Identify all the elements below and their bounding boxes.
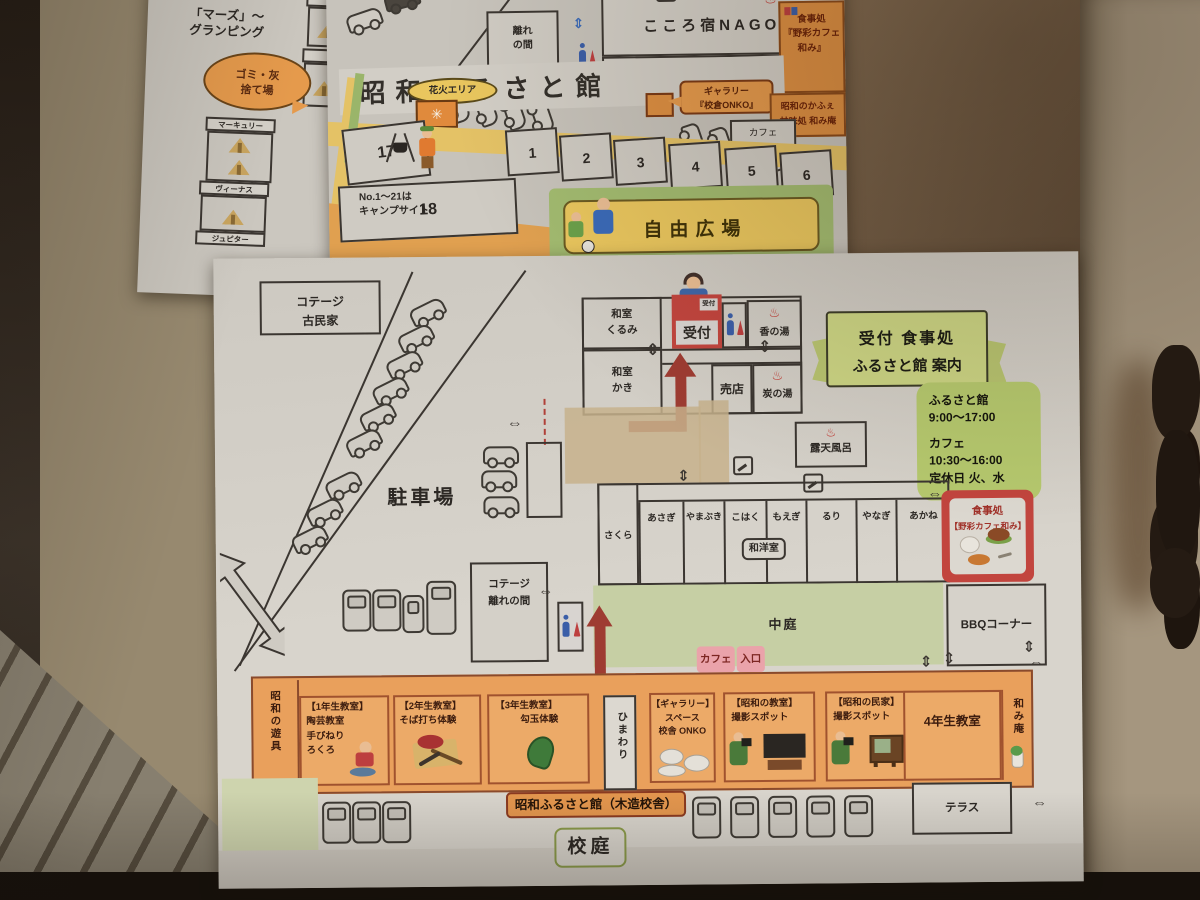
child-shirt-blue bbox=[593, 210, 613, 234]
gallery-pointer bbox=[668, 97, 682, 108]
gallery-space-line1: 【ギャラリー】 bbox=[651, 697, 713, 711]
road-double-arrow bbox=[220, 534, 285, 679]
hours-cafe-name: カフェ bbox=[929, 434, 1041, 452]
tv-screen-icon bbox=[874, 739, 890, 753]
leftright-arrow-icon: ⇔ bbox=[538, 584, 553, 599]
room-label: あかね bbox=[909, 510, 938, 521]
tent-icon bbox=[228, 160, 251, 176]
tent-box-venus bbox=[200, 195, 267, 234]
hanging-chain bbox=[1152, 345, 1200, 440]
note-line2: キャンプサイト bbox=[359, 204, 429, 219]
room-label: あさぎ bbox=[647, 513, 676, 524]
female-restroom-icon bbox=[573, 622, 580, 637]
camper-illustration bbox=[388, 126, 449, 181]
classroom1-line1: 【1年生教室】 bbox=[306, 700, 387, 715]
classroom3-line2: 勾玉体験 bbox=[495, 713, 583, 728]
van-icon bbox=[402, 595, 424, 633]
camp-restaurant-box: 食事処 『野彩カフェ 和み』 bbox=[778, 0, 845, 93]
child-shirt-green bbox=[568, 221, 583, 237]
path-arrow-head-up bbox=[586, 605, 612, 626]
hot-spring-icon: ♨ bbox=[764, 0, 777, 6]
kurumi-line1: 和室 bbox=[584, 307, 660, 323]
hot-spring-icon: ♨ bbox=[754, 369, 800, 382]
classroom1-box: 【1年生教室】 陶芸教室 手びねり ろくろ bbox=[299, 695, 390, 786]
campsite-1: 1 bbox=[505, 127, 560, 176]
classroom3-box: 【3年生教室】 勾玉体験 bbox=[487, 694, 590, 785]
food-patty-icon bbox=[988, 528, 1010, 541]
dish-icon bbox=[658, 765, 686, 777]
updown-arrow-icon: ⇕ bbox=[920, 655, 933, 670]
nagomian-label: 和み庵 bbox=[1011, 698, 1026, 736]
glamping-title-line2: グランピング bbox=[189, 22, 265, 41]
cafe-restaurant-line2: 【野彩カフェ和み】 bbox=[950, 520, 1026, 533]
leftright-arrow-icon: ⇔ bbox=[507, 416, 523, 432]
schoolyard-text: 校庭 bbox=[567, 836, 613, 857]
potter-body bbox=[356, 752, 374, 766]
building-name-label: 昭和ふるさと館（木造校舎） bbox=[506, 791, 686, 819]
photo-minka-line2: 撮影スポット bbox=[833, 710, 911, 725]
car-icon bbox=[345, 6, 385, 35]
school-building: 昭和の遊具 【1年生教室】 陶芸教室 手びねり ろくろ 【2年生教室】 そば打ち… bbox=[251, 670, 1034, 795]
female-restroom-icon bbox=[737, 320, 744, 335]
cottage-hanare-line2: 離れの間 bbox=[472, 593, 546, 610]
site-number: 4 bbox=[691, 158, 700, 174]
banner-line2: ふるさと館 案内 bbox=[828, 354, 986, 376]
sweets-line1: 昭和のかふぇ bbox=[772, 98, 844, 114]
classroom2-line2: そば打ち体験 bbox=[399, 714, 479, 729]
magatama-icon bbox=[523, 733, 557, 771]
bath-sumi-box: ♨ 炭の湯 bbox=[752, 364, 802, 414]
hours-facility-name: ふるさと館 bbox=[928, 392, 1040, 410]
room-sakura: さくら bbox=[597, 483, 639, 585]
camper-legs bbox=[421, 156, 433, 168]
red-dashed-line bbox=[544, 399, 546, 445]
car-icon bbox=[322, 802, 351, 844]
room-label: さくら bbox=[604, 530, 633, 541]
car-icon bbox=[372, 589, 401, 631]
photo-classroom-line2: 撮影スポット bbox=[731, 711, 813, 726]
male-restroom-icon bbox=[562, 622, 569, 637]
car-icon bbox=[344, 426, 384, 458]
campsite-2: 2 bbox=[559, 132, 614, 181]
cottage-hanare-box: コテージ 離れの間 bbox=[470, 562, 549, 663]
path-area bbox=[699, 400, 730, 484]
restroom-box-2 bbox=[557, 602, 583, 652]
room-label: るり bbox=[822, 511, 841, 522]
reception-text: 受付 bbox=[683, 324, 711, 340]
pottery-wheel-icon bbox=[350, 767, 376, 776]
car-icon bbox=[384, 348, 424, 380]
car-icon bbox=[370, 374, 410, 406]
car-icon bbox=[481, 470, 517, 488]
glamping-title: 「マーズ」〜 グランピング bbox=[189, 6, 265, 41]
gallery-space-line2: スペース bbox=[651, 711, 713, 725]
camp-map-paper: 離れ の間 ⇕ ⇕ こころ宿NAGOMI ♨ 枯山水『栃木の庭』 食事処 『野彩… bbox=[326, 0, 848, 278]
reception-label: 受付 bbox=[676, 320, 718, 344]
car-icon bbox=[692, 796, 721, 838]
car-icon bbox=[290, 523, 330, 555]
camera-icon bbox=[843, 737, 853, 745]
note-line1: No.1〜21は bbox=[359, 190, 429, 205]
photo-minka-line1: 【昭和の民家】 bbox=[833, 696, 911, 711]
fireworks-text: 花火エリア bbox=[429, 85, 477, 97]
campsite-3: 3 bbox=[613, 137, 668, 186]
car-icon bbox=[352, 801, 381, 843]
campsite-4: 4 bbox=[668, 141, 723, 190]
himawari-cell: ひまわり bbox=[603, 695, 637, 790]
path-arrow-shaft bbox=[594, 625, 605, 677]
shop-label: 売店 bbox=[720, 382, 744, 396]
gallery-space-box: 【ギャラリー】 スペース 校舎 ONKO bbox=[649, 692, 716, 783]
cafe-entrance-label-1: カフェ bbox=[697, 646, 735, 672]
soccer-ball-icon bbox=[582, 240, 595, 253]
himawari-label: ひまわり bbox=[615, 711, 630, 761]
children-playing-illustration bbox=[567, 193, 628, 254]
cafe-restaurant-line1: 食事処 bbox=[949, 503, 1025, 519]
car-icon bbox=[342, 589, 371, 631]
cafe-entrance-label-2: 入口 bbox=[737, 646, 765, 672]
dish-icon bbox=[660, 749, 684, 765]
meal-icon bbox=[784, 7, 790, 15]
tv-leg-icon bbox=[892, 761, 896, 767]
info-banner: 受付 食事処 ふるさと館 案内 bbox=[826, 310, 989, 387]
leftright-arrow-icon: ⇔ bbox=[1029, 656, 1044, 671]
classroom1-line4: ろくろ bbox=[307, 743, 388, 758]
nagomian-cell: 和み庵 bbox=[1001, 690, 1034, 780]
bbq-label: BBQコーナー bbox=[961, 619, 1033, 632]
updown-arrow-icon: ⇕ bbox=[572, 16, 584, 30]
reception-tag: 受付 bbox=[700, 298, 718, 310]
cafe-entrance-word2: 入口 bbox=[740, 653, 761, 665]
terrace-label: テラス bbox=[945, 802, 979, 814]
hanging-chain-end bbox=[1150, 548, 1200, 618]
smoking-area-icon bbox=[733, 456, 753, 475]
classroom1-line3: 手びねり bbox=[306, 729, 387, 744]
restaurant-line3: 和み』 bbox=[781, 41, 843, 56]
bubble-tail bbox=[292, 100, 309, 115]
leftright-arrow-icon: ⇔ bbox=[1032, 796, 1047, 811]
cottage-hanare-line1: コテージ bbox=[472, 576, 546, 593]
bus-icon bbox=[426, 581, 456, 635]
hot-spring-icon: ♨ bbox=[797, 426, 865, 439]
wayo-room-label: 和洋室 bbox=[742, 538, 786, 560]
hot-spring-icon: ♨ bbox=[749, 306, 800, 319]
tent-box-mercury bbox=[205, 131, 273, 183]
food-rice-icon bbox=[960, 536, 980, 553]
car-icon bbox=[483, 446, 519, 464]
photo-classroom-line1: 【昭和の教室】 bbox=[731, 697, 813, 712]
restroom-box bbox=[722, 302, 747, 348]
car-icon bbox=[323, 469, 363, 501]
hours-cafe-time: 10:30〜16:00 bbox=[929, 452, 1041, 470]
kurumi-line2: くるみ bbox=[584, 323, 660, 339]
white-utility-box bbox=[526, 442, 563, 518]
bath-kaori-label: 香の湯 bbox=[749, 323, 800, 338]
camper-body bbox=[419, 138, 435, 156]
wayo-room-text: 和洋室 bbox=[749, 543, 779, 554]
classroom2-box: 【2年生教室】 そば打ち体験 bbox=[393, 694, 482, 785]
food-croquette-icon bbox=[968, 554, 990, 565]
tent-icon bbox=[229, 138, 252, 154]
classroom4-cell: 4年生教室 bbox=[903, 690, 1002, 781]
room-label: こはく bbox=[731, 512, 760, 523]
bath-kaori-box: ♨ 香の湯 bbox=[747, 300, 802, 348]
spoon-icon bbox=[998, 552, 1012, 559]
room-ruri: るり bbox=[805, 500, 856, 583]
hanare-line1: 離れ bbox=[489, 24, 557, 39]
site-number: 6 bbox=[802, 167, 811, 183]
classroom1-line2: 陶芸教室 bbox=[306, 715, 387, 730]
parking-label: 駐車場 bbox=[387, 481, 456, 511]
banner-line1: 受付 食事処 bbox=[828, 324, 986, 349]
updown-arrow-icon: ⇕ bbox=[677, 469, 690, 484]
open-air-bath-box: ♨ 露天風呂 bbox=[795, 421, 867, 468]
room-yanagi: やなぎ bbox=[855, 500, 896, 583]
updown-arrow-icon: ⇕ bbox=[1023, 640, 1036, 655]
bottom-ground-band bbox=[218, 843, 1083, 889]
kaki-line2: かき bbox=[584, 381, 660, 397]
building-name-text: 昭和ふるさと館（木造校舎） bbox=[515, 797, 678, 812]
photo-minka-box: 【昭和の民家】 撮影スポット bbox=[825, 691, 914, 782]
campsite-note: No.1〜21は キャンプサイト bbox=[359, 190, 429, 219]
site-number: 3 bbox=[636, 154, 645, 170]
courtyard-label: 中庭 bbox=[768, 614, 798, 633]
car-icon bbox=[768, 796, 797, 838]
site-number: 5 bbox=[747, 162, 756, 178]
blackboard-icon bbox=[763, 734, 805, 758]
male-restroom-icon bbox=[727, 320, 734, 335]
gallery-line1: ギャラリー bbox=[681, 83, 771, 99]
updown-arrow-icon: ⇕ bbox=[758, 340, 772, 356]
playground-equip-label: 昭和の遊具 bbox=[268, 690, 284, 753]
updown-arrow-icon: ⇕ bbox=[646, 343, 660, 359]
car-icon bbox=[844, 795, 873, 837]
car-icon bbox=[382, 801, 411, 843]
gallery-space-line3: 校舎 ONKO bbox=[651, 724, 713, 738]
plaza-label: 自由広場 bbox=[643, 214, 747, 242]
site-number: 1 bbox=[528, 145, 537, 161]
reception-box: 受付 受付 bbox=[672, 294, 722, 348]
kominka-line2: 古民家 bbox=[262, 311, 379, 331]
site-label-jupiter: ジュピター bbox=[195, 230, 265, 247]
car-icon bbox=[358, 400, 398, 432]
glamping-map-paper: 「マーズ」〜 グランピング ゴミ・灰 捨て場 マーキュリー ヴィーナス ジュピタ… bbox=[137, 0, 345, 300]
gallery-label: ギャラリー 『校倉ONKO』 bbox=[679, 79, 773, 114]
desk-icon bbox=[768, 760, 802, 770]
cafe-restaurant-card: 食事処 【野彩カフェ和み】 bbox=[949, 498, 1026, 575]
camera-icon bbox=[741, 738, 751, 746]
open-air-bath-label: 露天風呂 bbox=[797, 440, 865, 456]
gallery-line2: 『校倉ONKO』 bbox=[682, 98, 772, 114]
cafe-terrace-line1: カフェ bbox=[732, 125, 794, 142]
meal-icon bbox=[791, 7, 797, 15]
classroom4-label: 4年生教室 bbox=[924, 714, 981, 728]
site-number: 2 bbox=[582, 150, 591, 166]
schoolyard-label: 校庭 bbox=[554, 827, 626, 868]
kaki-line1: 和室 bbox=[584, 365, 660, 381]
car-icon bbox=[806, 795, 835, 837]
car-icon bbox=[730, 796, 759, 838]
smoking-area-icon bbox=[656, 0, 676, 2]
playground-equip-cell: 昭和の遊具 bbox=[255, 680, 300, 789]
bubble-line2: 捨て場 bbox=[205, 81, 309, 100]
cottage-kominka-box: コテージ 古民家 bbox=[259, 280, 380, 335]
cafe-entrance-word1: カフェ bbox=[700, 653, 732, 665]
car-icon bbox=[483, 496, 519, 514]
hours-facility-time: 9:00〜17:00 bbox=[929, 409, 1041, 427]
photo-classroom-box: 【昭和の教室】 撮影スポット bbox=[723, 692, 816, 783]
hanare-line2: の間 bbox=[489, 38, 557, 53]
kominka-line1: コテージ bbox=[262, 292, 379, 312]
tv-leg-icon bbox=[874, 761, 878, 767]
car-icon bbox=[396, 322, 436, 354]
facility-map-paper: コテージ 古民家 駐車場 和室 くるみ 和室 かき 受付 受付 bbox=[213, 251, 1083, 889]
updown-arrow-icon: ⇕ bbox=[943, 651, 956, 666]
tent-icon bbox=[222, 209, 245, 225]
dish-icon bbox=[684, 754, 710, 771]
room-asagi: あさぎ bbox=[638, 502, 683, 585]
car-icon bbox=[382, 0, 421, 13]
room-yamabuki: やまぶき bbox=[682, 501, 724, 584]
bath-sumi-label: 炭の湯 bbox=[754, 385, 800, 400]
camper-bandana bbox=[420, 126, 434, 131]
car-icon bbox=[408, 296, 448, 328]
room-label: やまぶき bbox=[686, 511, 722, 521]
cream-soda-top-icon bbox=[1011, 746, 1023, 756]
terrace-box: テラス bbox=[912, 782, 1012, 835]
cafe-restaurant-box: 食事処 【野彩カフェ和み】 bbox=[941, 490, 1034, 583]
entrance-arrow-head bbox=[664, 353, 696, 377]
room-label: もえぎ bbox=[772, 512, 800, 523]
room-label: やなぎ bbox=[862, 511, 891, 522]
classroom2-line1: 【2年生教室】 bbox=[399, 699, 479, 714]
classroom3-line1: 【3年生教室】 bbox=[495, 699, 587, 714]
pot-icon bbox=[393, 143, 407, 153]
reception-tag-text: 受付 bbox=[702, 300, 715, 307]
hanging-chain-lower bbox=[1156, 430, 1200, 560]
restaurant-line2: 『野彩カフェ bbox=[781, 27, 843, 42]
